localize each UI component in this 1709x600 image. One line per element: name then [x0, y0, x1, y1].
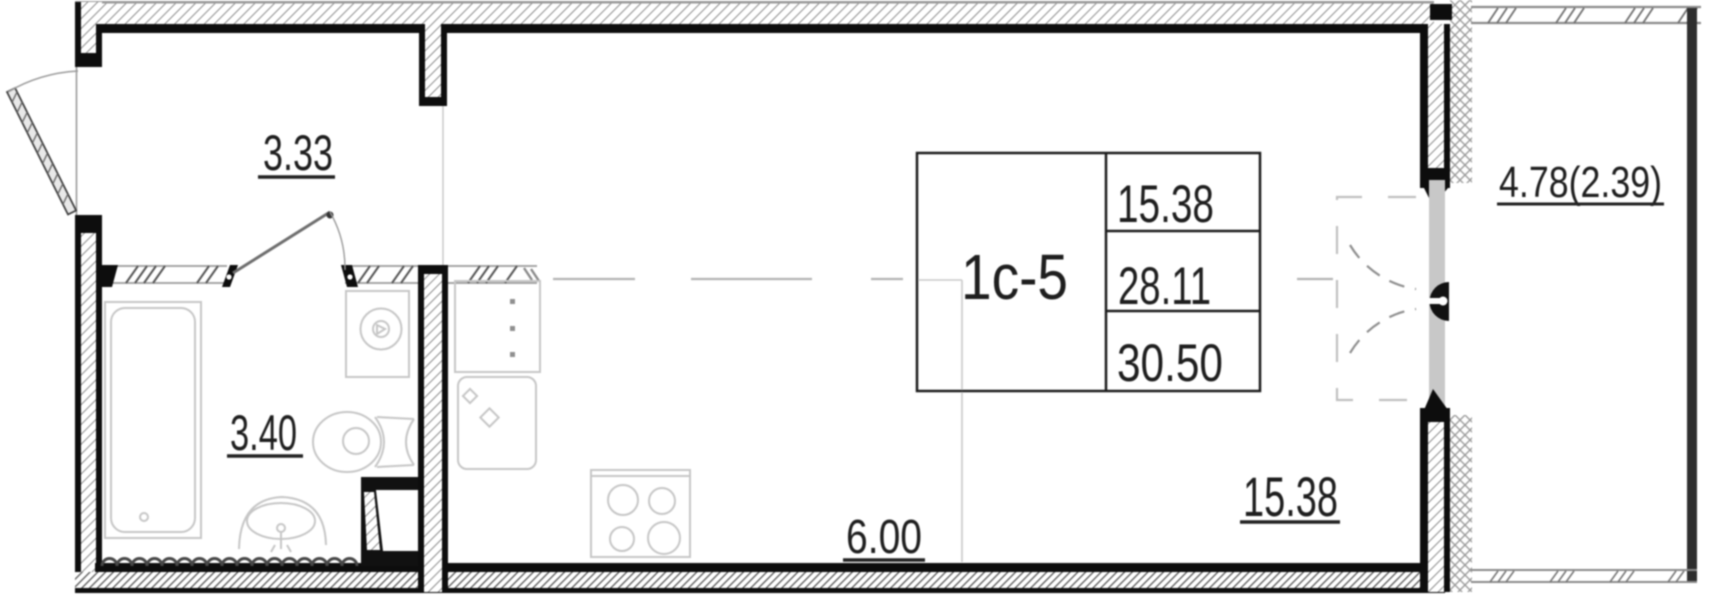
svg-text:15.38: 15.38: [1243, 465, 1338, 528]
svg-text:30.50: 30.50: [1117, 334, 1223, 393]
svg-text:28.11: 28.11: [1118, 257, 1211, 316]
svg-text:3.40: 3.40: [230, 405, 297, 461]
svg-text:1с-5: 1с-5: [961, 241, 1068, 313]
svg-text:6.00: 6.00: [846, 511, 922, 564]
svg-text:3.33: 3.33: [263, 125, 333, 181]
svg-text:15.38: 15.38: [1117, 175, 1214, 234]
svg-text:4.78(2.39): 4.78(2.39): [1499, 158, 1662, 207]
